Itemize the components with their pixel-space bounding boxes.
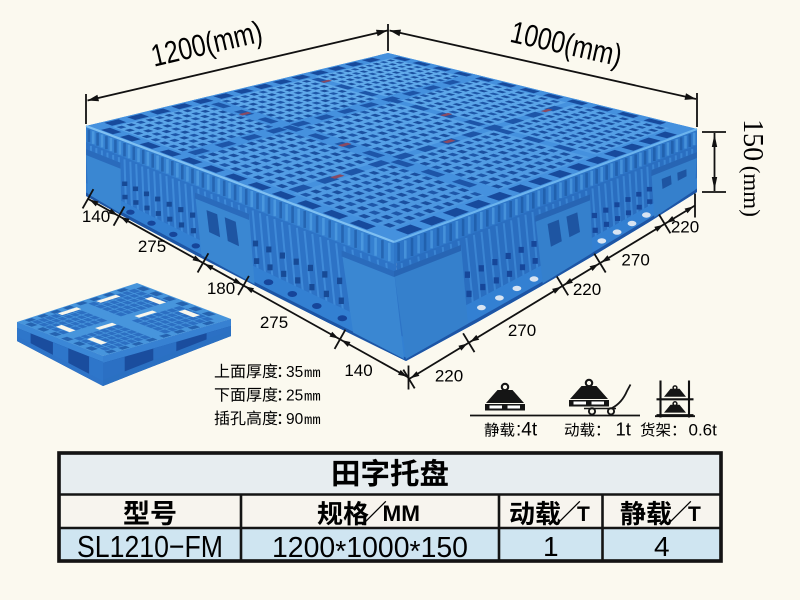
svg-text:270: 270 (508, 321, 536, 340)
svg-text:SL1210−FM: SL1210−FM (77, 529, 223, 564)
svg-text:220: 220 (671, 218, 699, 237)
svg-text:140: 140 (82, 207, 110, 226)
svg-text:275: 275 (138, 237, 166, 256)
svg-text::4t: :4t (516, 420, 538, 441)
svg-text:0.6t: 0.6t (689, 421, 718, 440)
svg-text:MM: MM (383, 501, 421, 526)
svg-text:mm: mm (304, 366, 321, 382)
svg-text:1200*1000*150: 1200*1000*150 (272, 532, 468, 568)
svg-text:140: 140 (344, 361, 372, 380)
svg-text:220: 220 (573, 280, 601, 299)
svg-text:mm: mm (304, 413, 321, 429)
svg-text:180: 180 (207, 279, 235, 298)
svg-text:4: 4 (654, 531, 670, 562)
svg-text:150 (mm): 150 (mm) (737, 119, 768, 217)
svg-text:mm: mm (304, 390, 321, 406)
svg-text:90: 90 (286, 411, 304, 428)
svg-text:1t: 1t (616, 419, 631, 440)
svg-text:25: 25 (286, 388, 303, 405)
svg-text:220: 220 (435, 367, 463, 386)
svg-text:275: 275 (260, 313, 288, 332)
svg-text:35: 35 (286, 364, 303, 381)
svg-text:T: T (577, 503, 590, 526)
svg-text:270: 270 (621, 251, 649, 270)
svg-text:1: 1 (543, 531, 559, 562)
svg-text:T: T (688, 503, 701, 526)
